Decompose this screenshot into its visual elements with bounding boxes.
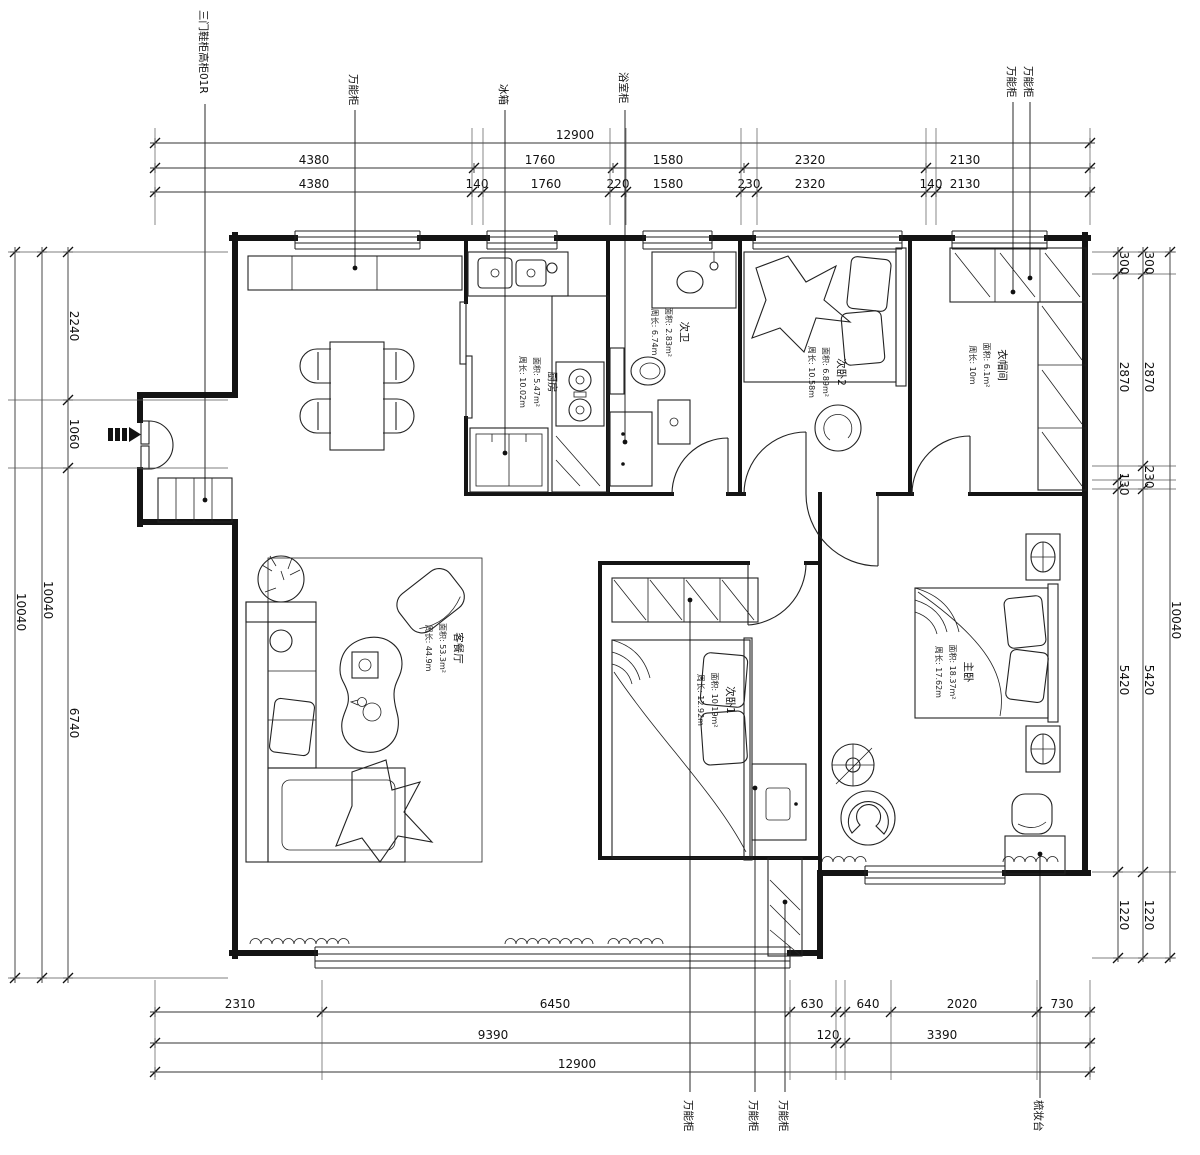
room-perimeter: 周长: 10.02m [518, 356, 528, 408]
callout-label-bottom: 万能柜 [777, 1100, 790, 1132]
round-pillow [270, 630, 292, 652]
shoe-cabinet [158, 478, 232, 522]
corner-cabinet [556, 436, 600, 486]
room-area: 面积: 53.3m² [438, 623, 448, 673]
callout-label-bottom: 万能柜 [682, 1100, 695, 1132]
dimension-label: 10040 [14, 593, 28, 631]
callout-label-bottom: 万能柜 [747, 1100, 760, 1132]
dimension-label: 1220 [1117, 900, 1131, 931]
window-balcony [315, 947, 790, 968]
dimensions-layer: 1290043801760158023202130438014017602201… [8, 128, 1183, 1080]
throw-blanket [336, 760, 432, 862]
wardrobe-side [1038, 302, 1086, 490]
room-label: 主卧面积: 18.37m²周长: 17.62m [934, 644, 975, 699]
dimension-label: 6740 [67, 708, 81, 739]
master-door [806, 494, 878, 566]
dimension-label: 2310 [225, 997, 256, 1011]
dining-chair [300, 349, 331, 383]
dimension-label: 130 [1117, 473, 1131, 496]
callout-label-bottom: 梳妆台 [1032, 1100, 1045, 1132]
room-label: 衣帽间面积: 6.1m²周长: 10m [968, 343, 1009, 388]
callout-label-top: 三门鞋柜高柜01R [197, 10, 210, 94]
living-dining-room [246, 556, 482, 862]
room-perimeter: 周长: 12.92m [696, 674, 706, 726]
master-bedroom [832, 534, 1065, 874]
furniture [158, 248, 1086, 956]
dimension-label: 2320 [795, 177, 826, 191]
door-stop-icon [108, 427, 141, 442]
room-label: 客餐厅面积: 53.3m²周长: 44.9m [424, 623, 465, 673]
room-area: 面积: 18.37m² [948, 644, 958, 699]
room-perimeter: 周长: 44.9m [424, 625, 434, 672]
entry-double-door [108, 421, 173, 469]
dimension-label: 140 [920, 177, 943, 191]
floor-plan-drawing: 1290043801760158023202130438014017602201… [0, 0, 1200, 1155]
walls [140, 235, 1088, 956]
kitchen-counter [552, 296, 608, 492]
bath-vanity [610, 412, 652, 486]
curtain-master-left [822, 857, 866, 862]
dimension-label: 1760 [531, 177, 562, 191]
room-name: 次卧1 [724, 686, 737, 714]
pillow [700, 652, 748, 708]
callout-label-top: 冰箱 [497, 84, 510, 105]
dressing-stool [1012, 794, 1052, 834]
window-top-kitchen [487, 231, 557, 249]
dimension-label: 4380 [299, 177, 330, 191]
dining-chair [383, 349, 414, 383]
headboard [744, 638, 752, 860]
cloakroom-door [912, 436, 970, 494]
dimension-label: 10040 [1169, 601, 1183, 639]
window-master [865, 866, 1005, 884]
kitchen-sliding-door [460, 302, 472, 418]
faucet-icon [710, 262, 718, 270]
curtain-living-left [250, 939, 349, 945]
room-area: 面积: 6.1m² [982, 343, 992, 388]
callout-label-top: 浴室柜 [617, 72, 630, 104]
rug [268, 558, 482, 862]
room-area: 面积: 10.19m² [710, 672, 720, 727]
curtain-bedroom1 [608, 939, 663, 945]
toilet-tank [610, 348, 624, 394]
dimension-label: 140 [466, 177, 489, 191]
bathroom [610, 252, 736, 486]
room-name: 厨房 [546, 372, 559, 393]
dimension-label: 2870 [1117, 362, 1131, 393]
dimension-label: 4380 [299, 153, 330, 167]
outer-walls [140, 235, 1088, 956]
round-chair [841, 791, 895, 845]
sofa-pillow [269, 698, 315, 756]
duvet-fold [915, 588, 1002, 716]
nightstand [1026, 534, 1060, 580]
room-label: 次卧1面积: 10.19m²周长: 12.92m [696, 672, 737, 727]
sink-bowl [516, 260, 546, 286]
floor-plan-page: 1290043801760158023202130438014017602201… [0, 0, 1200, 1155]
dimension-label: 5420 [1117, 665, 1131, 696]
dimension-label: 2020 [947, 997, 978, 1011]
room-name: 次卫 [678, 322, 691, 343]
bed [744, 252, 896, 382]
window-top-bedroom2 [753, 231, 902, 249]
dining-chair [383, 399, 414, 433]
quilt [752, 256, 850, 352]
dimension-label: 2130 [950, 177, 981, 191]
bedside-desk [752, 764, 806, 840]
window-top-dining [295, 231, 420, 249]
dimension-label: 2320 [795, 153, 826, 167]
dimension-label: 9390 [478, 1028, 509, 1042]
dimension-label: 12900 [558, 1057, 596, 1071]
room-area: 面积: 6.89m² [821, 347, 831, 397]
callout-label-top: 万能柜 [1005, 66, 1018, 98]
armchair [815, 405, 861, 451]
room-label: 次卧2面积: 6.89m²周长: 10.58m [807, 346, 848, 398]
interior-walls [466, 241, 1085, 873]
dimension-label: 230 [1142, 466, 1156, 489]
window-top-bath [643, 231, 712, 249]
dimension-label: 300 [1117, 252, 1131, 275]
dimension-label: 640 [857, 997, 880, 1011]
headboard [1048, 584, 1058, 722]
curtain-master-right [1003, 857, 1058, 862]
dimension-label: 2130 [950, 153, 981, 167]
bedroom1 [612, 578, 806, 956]
duck-ornament [351, 698, 381, 722]
room-perimeter: 周长: 17.62m [934, 646, 944, 698]
dimension-label: 1220 [1142, 900, 1156, 931]
callout-label-top: 万能柜 [347, 74, 360, 106]
room-label: 厨房面积: 5.47m²周长: 10.02m [518, 356, 559, 408]
window-top-cloakroom [952, 231, 1047, 249]
room-area: 面积: 5.47m² [532, 357, 542, 407]
dining-area [248, 256, 462, 450]
bed [612, 640, 750, 858]
sink-counter [468, 252, 568, 296]
dimension-label: 3390 [927, 1028, 958, 1042]
room-perimeter: 周长: 6.74m [650, 309, 660, 356]
cooktop [556, 362, 604, 426]
basin-counter [652, 252, 736, 308]
wardrobe [612, 578, 758, 622]
pillow [846, 256, 891, 312]
burner-icon [569, 369, 591, 391]
dimension-label: 2240 [67, 311, 81, 342]
washbasin [677, 271, 703, 293]
dimension-label: 2870 [1142, 362, 1156, 393]
dimension-label: 300 [1142, 252, 1156, 275]
callout-label-top: 万能柜 [1022, 66, 1035, 98]
dimension-label: 730 [1051, 997, 1074, 1011]
room-name: 主卧 [962, 662, 975, 683]
room-name: 衣帽间 [996, 349, 1009, 381]
faucet-icon [547, 263, 557, 273]
room-label: 次卫面积: 2.83m²周长: 6.74m [650, 307, 691, 357]
dimension-label: 1580 [653, 153, 684, 167]
room-name: 次卧2 [835, 358, 848, 386]
curtain-living-right [505, 939, 593, 945]
ceiling-light-icon [832, 744, 874, 786]
dimension-label: 6450 [540, 997, 571, 1011]
room-name: 客餐厅 [452, 632, 465, 664]
dimension-label: 1580 [653, 177, 684, 191]
dimension-label: 1060 [67, 419, 81, 450]
dining-table [330, 342, 384, 450]
entry-area [158, 478, 232, 522]
coffee-table [340, 637, 402, 752]
dimension-label: 10040 [41, 581, 55, 619]
headboard [896, 248, 906, 386]
dimension-label: 630 [801, 997, 824, 1011]
pillow [700, 711, 748, 766]
burner-icon [569, 399, 591, 421]
pillow [1005, 649, 1049, 703]
bath-door [672, 438, 728, 494]
room-perimeter: 周长: 10m [968, 345, 978, 384]
leader-lines [203, 102, 1043, 1098]
sink-bowl [478, 258, 512, 288]
sofa [246, 602, 405, 862]
room-area: 面积: 2.83m² [664, 307, 674, 357]
dimension-label: 12900 [556, 128, 594, 142]
room-perimeter: 周长: 10.58m [807, 346, 817, 398]
duvet-fold [612, 640, 746, 852]
bedroom2-door [744, 432, 806, 494]
shower-tray [658, 400, 690, 444]
nightstand [1026, 726, 1060, 772]
bedroom1-door [748, 563, 806, 625]
plant [258, 556, 304, 602]
dimension-label: 5420 [1142, 665, 1156, 696]
dimension-label: 1760 [525, 153, 556, 167]
pillow [1003, 595, 1046, 649]
dining-chair [300, 399, 331, 433]
